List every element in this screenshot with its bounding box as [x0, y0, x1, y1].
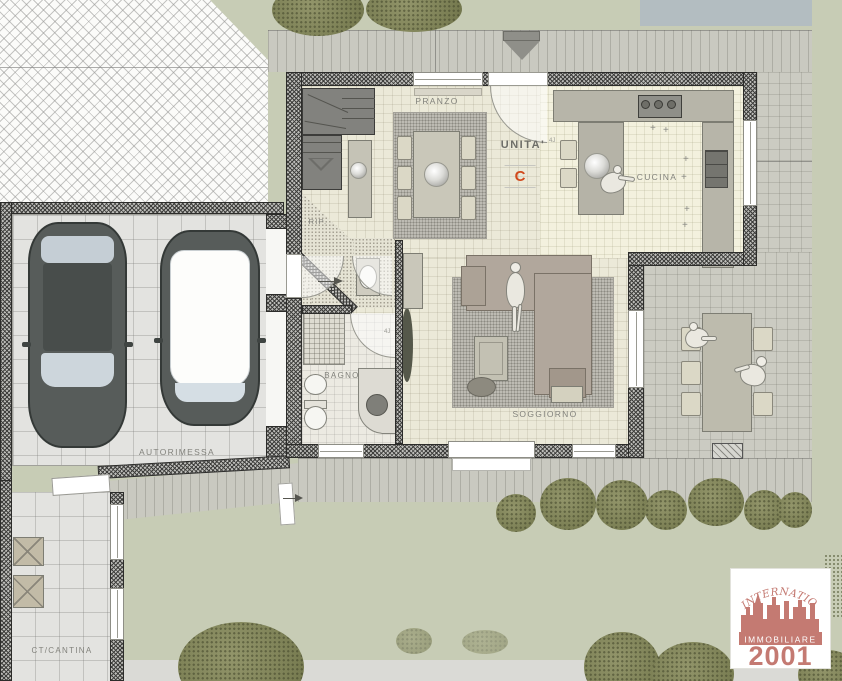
stair-tread-3: [342, 118, 375, 119]
window-bath-south: [318, 444, 364, 458]
dining-label: PRANZO: [415, 96, 458, 106]
car-white-mirror-right: [257, 338, 266, 343]
armchair: [461, 266, 486, 306]
hedge-bush-2: [540, 478, 596, 530]
garage-wall-top: [8, 202, 284, 214]
wall-north-3: [546, 72, 757, 86]
hob-burner-1: [641, 100, 650, 109]
kitchen-counter-right: [702, 122, 734, 268]
kitchen-symbol-cross-2: +: [663, 127, 671, 135]
stair-tread-1: [342, 98, 375, 99]
driveway-herringbone-paving: [0, 0, 268, 205]
north-walkway-paving: [268, 30, 812, 72]
window-dining-north: [413, 72, 483, 86]
east-patio-upper: [757, 72, 812, 252]
car-white-mirror-left: [154, 338, 163, 343]
person-terrace-1-head: [689, 322, 698, 331]
stair-tread-5: [303, 152, 342, 153]
lawn-shrub-small-2: [462, 630, 508, 654]
person-living-head: [510, 262, 521, 273]
dining-chair-3: [397, 196, 412, 220]
sideboard: [348, 140, 372, 218]
garage-pillar-1: [266, 214, 288, 229]
dining-chair-1: [397, 136, 412, 160]
floor-plan-canvas: AUTORIMESSA CT/CANTINA: [0, 0, 842, 681]
dimension-line-patio: [756, 161, 812, 162]
garage-wall-left: [0, 202, 12, 482]
toilet: [304, 406, 327, 430]
hedge-bush-3: [596, 480, 648, 530]
person-terrace-2: [734, 352, 774, 392]
terrace-doormat: [712, 443, 743, 459]
hedge-bush-7: [778, 492, 812, 528]
car-white: [160, 230, 260, 426]
cellar-label: CT/CANTINA: [32, 646, 93, 655]
entry-arrow-line: [318, 281, 334, 282]
agency-logo: INTERNATIONAL IMMOBILIARE 2001: [731, 569, 830, 668]
hob-burner-2: [654, 100, 663, 109]
garage-label: AUTORIMESSA: [139, 447, 215, 457]
kitchen-symbol-cross-1: +: [650, 125, 658, 133]
car-dark-roof: [43, 263, 112, 351]
hedge-bush-5: [688, 478, 744, 526]
kitchen-label: CUCINA: [637, 172, 677, 182]
terrace-chair-5: [753, 392, 773, 416]
roof-shadow-band: [640, 0, 812, 26]
car-dark-mirror-right: [124, 342, 133, 347]
entrance-marker-bar: [503, 31, 540, 41]
person-living: [503, 260, 533, 338]
cabinet-living: [403, 253, 423, 309]
window-kitchen-east: [743, 120, 757, 206]
person-terrace-1: [683, 320, 719, 354]
door-main-opening: [488, 72, 548, 86]
cellar-wall-left: [0, 480, 12, 681]
logo-year-text: 2001: [748, 641, 812, 668]
car-dark-rear-glass: [41, 236, 114, 263]
car-dark-windshield: [41, 353, 114, 387]
walk-arrow-line: [283, 498, 295, 499]
boiler-unit-1: [13, 537, 44, 566]
window-living-south: [572, 444, 616, 458]
bathroom-label: BAGNO: [324, 371, 359, 380]
unit-letter: C: [505, 165, 536, 188]
boiler-unit-2: [13, 575, 44, 608]
window-living-east: [628, 310, 644, 388]
terrace-chair-3: [681, 392, 701, 416]
wall-bath-partition-horizontal: [302, 305, 352, 314]
person-terrace-2-head: [756, 356, 767, 367]
garage-pillar-2: [266, 294, 288, 312]
dining-chair-2: [397, 166, 412, 190]
dining-centerpiece: [424, 162, 449, 187]
stair-tread-2: [342, 108, 375, 109]
kitchen-chair-1: [560, 140, 577, 160]
wall-step-kitchen: [628, 252, 757, 266]
hedge-bush-1: [496, 494, 536, 532]
kitchen-appliance-column: [705, 150, 728, 188]
lawn-bush-south-1: [584, 632, 660, 681]
stair-direction-arrow-inner: [312, 159, 330, 168]
french-door-south: [448, 441, 535, 458]
wall-west-lower: [286, 298, 302, 458]
sideboard-vase: [350, 162, 367, 179]
person-kitchen: [598, 164, 638, 198]
ottoman: [551, 386, 583, 403]
wall-bath-partition-vertical: [395, 240, 403, 444]
wall-north-1: [296, 72, 415, 86]
lawn-bush-south-2: [652, 642, 734, 681]
cellar-window-1: [110, 504, 124, 560]
shower-tiled: [303, 312, 345, 365]
walk-arrow-icon: [295, 494, 303, 502]
stair-tread-4: [303, 142, 342, 143]
corner-shower-drain: [366, 394, 388, 416]
tree-north-2: [366, 0, 462, 32]
person-kitchen-head: [613, 165, 622, 174]
car-white-roof: [170, 250, 250, 387]
kitchen-symbol-cross-6: +: [682, 222, 690, 230]
kitchen-symbol-cross-5: +: [684, 206, 692, 214]
door-tag-bath: 4J: [384, 329, 390, 335]
door-west-opening: [286, 254, 302, 298]
wall-west-upper: [286, 72, 302, 256]
side-pouf: [467, 377, 496, 397]
car-white-windshield: [175, 383, 245, 403]
cellar-window-2: [110, 588, 124, 640]
driveway-divider-line: [0, 67, 268, 68]
terrace-chair-4: [753, 327, 773, 351]
dining-chair-4: [461, 136, 476, 160]
hedge-bush-4: [645, 490, 687, 530]
coffee-table-inner: [479, 342, 503, 375]
lawn-shrub-small-1: [396, 628, 432, 654]
entrance-marker-arrow-icon: [504, 41, 540, 60]
storage-label: RIP.: [309, 217, 328, 226]
dimension-line-vertical: [435, 30, 436, 72]
kitchen-symbol-cross-4: +: [681, 174, 689, 182]
living-label: SOGGIORNO: [512, 409, 577, 419]
staircase-upper: [302, 88, 375, 135]
hob-burner-3: [667, 100, 676, 109]
person-terrace-1-arm: [701, 336, 717, 341]
terrace-chair-2: [681, 361, 701, 385]
door-tag-main: 4J: [549, 138, 555, 144]
person-living-torso: [506, 272, 525, 308]
unit-label: UNITA': [501, 139, 545, 151]
entry-arrow-icon: [334, 277, 343, 285]
dining-chair-5: [461, 166, 476, 190]
kitchen-chair-2: [560, 168, 577, 188]
french-door-step: [452, 458, 531, 471]
dining-chair-6: [461, 196, 476, 220]
car-dark-mirror-left: [22, 342, 31, 347]
window-sill-dining: [414, 88, 482, 96]
person-kitchen-torso: [597, 168, 628, 196]
lawn-bush-southwest: [178, 622, 304, 681]
garage-walk-gate: [278, 483, 296, 526]
agency-logo-graphic: INTERNATIONAL IMMOBILIARE 2001: [731, 569, 830, 668]
car-dark: [28, 222, 127, 448]
kitchen-symbol-cross-3: +: [683, 156, 691, 164]
